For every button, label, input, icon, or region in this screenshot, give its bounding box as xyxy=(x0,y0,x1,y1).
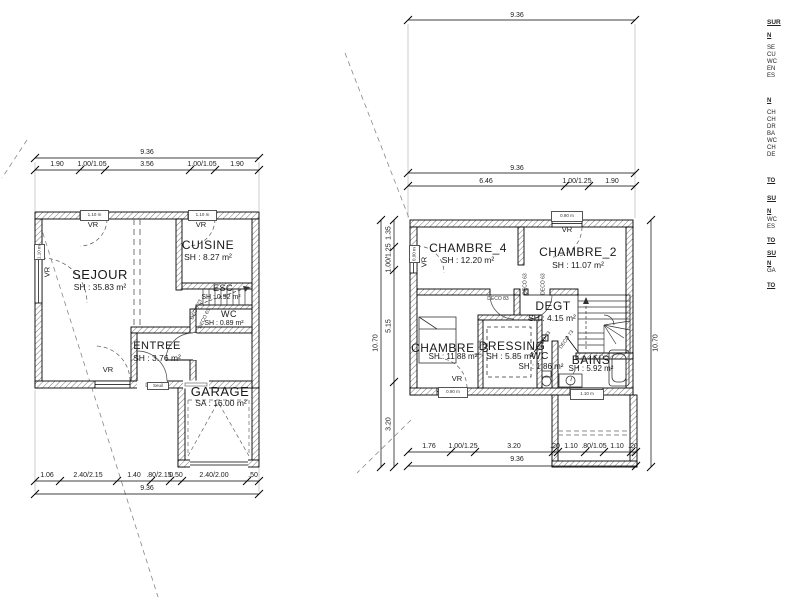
ground-dim-top-total: 9.36 xyxy=(140,149,154,156)
upper-dim-bottom-seg: 3.20 xyxy=(507,443,521,450)
legend-line-1: N xyxy=(767,33,771,39)
ground-dim-top-seg: 3.56 xyxy=(140,161,154,168)
upper-dim-left-seg: 3.20 xyxy=(386,417,393,431)
ground-dim-top-seg: 1.90 xyxy=(50,161,64,168)
room-label-chambre4: CHAMBRE_4 xyxy=(429,242,507,254)
surface-legend: SURNSECUWCENESNCHCHDRBAWCCHDETOSUNWCESTO… xyxy=(767,0,800,310)
window-sill-tag: 1.10 m xyxy=(570,389,604,400)
window-vr-label: VR xyxy=(452,375,462,383)
door-seuil-tag: Seuil xyxy=(147,382,169,390)
door-tag: DECO 63 xyxy=(542,273,547,294)
room-area-degt: SH : 4.15 m² xyxy=(528,314,576,323)
window-sill-tag: 1.10 m xyxy=(34,244,45,260)
legend-line-8: CH xyxy=(767,110,776,116)
door-tag: DECO 63 xyxy=(524,273,529,294)
room-area-chambre2: SH : 11.07 m² xyxy=(552,261,604,270)
upper-dim-left-seg: 5.15 xyxy=(386,319,393,333)
ground-dim-bottom-seg: 2.40/2.00 xyxy=(199,472,228,479)
ground-dim-bottom-seg: 2.40/2.15 xyxy=(73,472,102,479)
upper-dim-bottom-seg: .20 xyxy=(550,443,560,450)
ground-dim-bottom-seg: .80/2.15 xyxy=(146,472,171,479)
room-area-chambre3: SH : 11.88 m² xyxy=(429,353,478,361)
legend-line-10: DR xyxy=(767,124,776,130)
legend-line-24: TO xyxy=(767,283,775,289)
upper-dim-bottom-seg: 1.10 xyxy=(564,443,578,450)
upper-dim-ticks xyxy=(377,16,655,471)
legend-line-21: SU xyxy=(767,251,776,258)
room-area-wc-upper: SH : 1.86 m² xyxy=(519,363,564,371)
room-label-wc-upper: WC xyxy=(531,352,549,362)
upper-dim-left-seg: 1.35 xyxy=(386,226,393,240)
ground-dim-bottom-seg: .50 xyxy=(248,472,258,479)
upper-dim-left-total: 10.70 xyxy=(373,334,380,352)
window-sill-tag: 0.90 m xyxy=(438,387,468,398)
legend-line-11: BA xyxy=(767,131,775,137)
room-label-sejour: SEJOUR xyxy=(72,268,128,281)
room-area-entree: SH : 3.76 m² xyxy=(133,354,181,363)
legend-line-6: ES xyxy=(767,73,775,79)
window-sill-tag: 1.10 m xyxy=(188,210,217,221)
room-area-dressing: SH : 5.85 m² xyxy=(486,352,534,361)
legend-line-7: N xyxy=(767,98,771,104)
window-sill-tag: 1.10 m xyxy=(80,210,109,221)
ground-dim-bottom-seg: 1.40 xyxy=(127,472,141,479)
legend-line-13: CH xyxy=(767,145,776,151)
room-label-degt: DEGT xyxy=(535,300,570,312)
window-vr-label: VR xyxy=(420,257,428,267)
legend-line-2: SE xyxy=(767,45,775,51)
legend-line-23: GA xyxy=(767,268,776,274)
room-label-chambre2: CHAMBRE_2 xyxy=(539,246,617,258)
window-vr-label: VR xyxy=(103,366,113,374)
window-sill-tag: 0.90 m xyxy=(409,245,420,263)
room-area-cuisine: SH : 8.27 m² xyxy=(184,253,232,262)
room-label-wc: WC xyxy=(221,310,237,319)
legend-line-9: CH xyxy=(767,117,776,123)
room-label-cuisine: CUISINE xyxy=(182,239,234,251)
plan-linework xyxy=(0,0,800,600)
room-area-esc: SH : 0.92 m² xyxy=(201,294,240,301)
room-area-sejour: SH : 35.83 m² xyxy=(74,283,126,292)
legend-line-5: EN xyxy=(767,66,775,72)
legend-line-19: ES xyxy=(767,224,775,230)
ground-dim-bottom-seg: 1.06 xyxy=(40,472,54,479)
upper-dims xyxy=(381,20,651,467)
room-area-chambre4: SH : 12.20 m² xyxy=(442,256,494,265)
upper-dim-mid-seg: 1.00/1.25 xyxy=(562,178,591,185)
ground-dim-top-seg: 1.00/1.05 xyxy=(187,161,216,168)
legend-line-15: TO xyxy=(767,178,775,184)
floor-plan-sheet: 9.36 1.90 1.00/1.05 3.56 1.00/1.05 1.90 … xyxy=(0,0,800,600)
upper-dim-mid-seg: 1.90 xyxy=(605,178,619,185)
ground-dim-bottom-total: 9.36 xyxy=(140,485,154,492)
annex-dashed-lines xyxy=(558,431,630,435)
legend-line-14: DE xyxy=(767,152,775,158)
legend-line-0: SUR xyxy=(767,20,781,27)
window-vr-label: VR xyxy=(43,267,51,277)
legend-line-3: CU xyxy=(767,52,776,58)
upper-dim-mid-seg: 6.46 xyxy=(479,178,493,185)
ground-dim-top-seg: 1.00/1.05 xyxy=(77,161,106,168)
legend-line-22: N xyxy=(767,261,771,267)
upper-dim-bottom-seg: 1.00/1.25 xyxy=(448,443,477,450)
legend-line-18: WC xyxy=(767,217,777,223)
upper-dim-bottom-seg: 1.76 xyxy=(422,443,436,450)
room-label-garage: GARAGE xyxy=(191,385,250,398)
window-vr-label: VR xyxy=(88,221,98,229)
room-label-entree: ENTREE xyxy=(133,341,181,352)
upper-dim-bottom-seg: .80/1.05 xyxy=(581,443,606,450)
legend-line-12: WC xyxy=(767,138,777,144)
room-area-bains: SH : 5.92 m² xyxy=(569,365,614,373)
ground-dim-top-seg: 1.90 xyxy=(230,161,244,168)
window-vr-label: VR xyxy=(562,226,572,234)
door-tag: DECO 83 xyxy=(487,297,508,302)
legend-line-20: TO xyxy=(767,238,775,244)
legend-line-4: WC xyxy=(767,59,777,65)
window-vr-label: VR xyxy=(196,221,206,229)
legend-line-17: N xyxy=(767,209,771,215)
ground-dim-bottom-seg: 0.50 xyxy=(169,472,183,479)
garage-door-symbol xyxy=(188,400,249,456)
window-sill-tag: 0.90 m xyxy=(551,211,583,222)
upper-stair xyxy=(578,295,630,353)
upper-dim-bottom-seg: .20 xyxy=(628,443,638,450)
room-area-wc: SH : 0.89 m² xyxy=(204,320,243,327)
upper-dim-top-total: 9.36 xyxy=(510,12,524,19)
upper-dim-right-total: 10.70 xyxy=(653,334,660,352)
upper-dim-mid-total: 9.36 xyxy=(510,165,524,172)
upper-dim-left-seg: 1.00/1.25 xyxy=(386,243,393,272)
room-area-garage: SA : 16.00 m² xyxy=(195,399,247,408)
ground-beam-lines xyxy=(134,219,140,327)
upper-dim-bottom-total: 9.36 xyxy=(510,456,524,463)
room-label-esc: ESC xyxy=(213,284,233,293)
legend-line-16: SU xyxy=(767,196,776,203)
upper-dim-bottom-seg: 1.10 xyxy=(610,443,624,450)
